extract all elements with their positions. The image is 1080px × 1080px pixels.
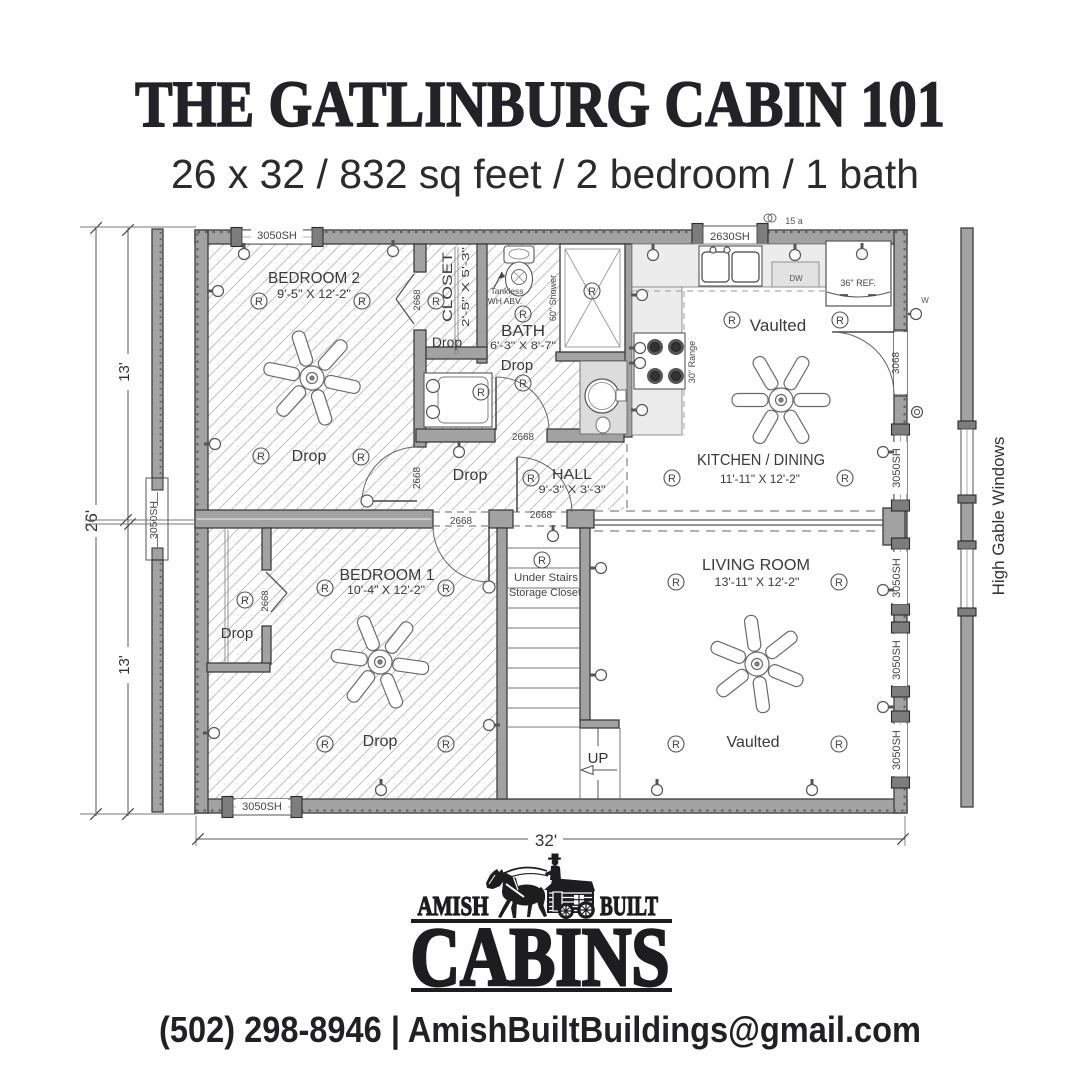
svg-text:BATH: BATH [501, 323, 545, 340]
svg-text:LIVING ROOM: LIVING ROOM [702, 557, 810, 574]
svg-text:26 x 32 / 832 sq feet / 2 bedr: 26 x 32 / 832 sq feet / 2 bedroom / 1 ba… [171, 151, 919, 197]
svg-text:Vaulted: Vaulted [726, 734, 779, 751]
svg-text:KITCHEN / DINING: KITCHEN / DINING [697, 452, 825, 469]
svg-text:Drop: Drop [453, 467, 488, 484]
svg-text:WH ABV.: WH ABV. [488, 296, 523, 306]
svg-text:26': 26' [82, 510, 101, 532]
svg-text:36" REF.: 36" REF. [840, 278, 875, 288]
svg-text:10'-4" X 12'-2": 10'-4" X 12'-2" [347, 585, 425, 597]
svg-text:UP: UP [588, 750, 609, 767]
svg-text:9'-3" X 3'-3": 9'-3" X 3'-3" [539, 484, 606, 496]
svg-text:Storage Closet: Storage Closet [509, 587, 581, 599]
svg-text:R: R [477, 387, 485, 399]
svg-text:13': 13' [116, 655, 133, 675]
svg-text:R: R [841, 473, 849, 485]
svg-text:Drop: Drop [363, 733, 398, 750]
svg-text:Drop: Drop [221, 625, 254, 642]
svg-text:R: R [668, 473, 676, 485]
svg-text:DW: DW [789, 274, 803, 283]
svg-text:R: R [519, 309, 527, 321]
svg-text:R: R [357, 452, 365, 464]
svg-text:R: R [538, 555, 546, 567]
svg-text:2668: 2668 [412, 289, 423, 310]
svg-text:R: R [672, 739, 680, 751]
svg-text:11'-11" X 12'-2": 11'-11" X 12'-2" [720, 474, 800, 486]
svg-text:Drop: Drop [292, 448, 327, 465]
svg-text:2'-5" X 5'-3": 2'-5" X 5'-3" [460, 247, 472, 327]
svg-text:(502) 298-8946 | AmishBuiltBui: (502) 298-8946 | AmishBuiltBuildings@gma… [159, 1009, 921, 1051]
svg-text:3068: 3068 [891, 351, 902, 374]
svg-text:15 a: 15 a [785, 216, 803, 226]
svg-text:R: R [836, 315, 844, 327]
svg-text:3050SH: 3050SH [891, 558, 903, 598]
svg-text:3050SH: 3050SH [257, 230, 297, 242]
svg-text:2668: 2668 [260, 590, 271, 611]
svg-text:6'-3" X 8'-7": 6'-3" X 8'-7" [490, 340, 556, 352]
svg-text:CLOSET: CLOSET [440, 252, 455, 322]
svg-text:High Gable Windows: High Gable Windows [989, 437, 1008, 596]
svg-text:Drop: Drop [501, 357, 534, 374]
svg-text:HALL: HALL [552, 466, 592, 483]
svg-text:R: R [241, 595, 249, 607]
svg-text:R: R [358, 296, 366, 308]
svg-text:R: R [519, 378, 527, 390]
svg-text:3050SH: 3050SH [891, 448, 903, 488]
svg-text:9'-5" X 12'-2": 9'-5" X 12'-2" [277, 289, 351, 301]
svg-text:3050SH: 3050SH [891, 640, 903, 680]
svg-text:R: R [321, 739, 329, 751]
svg-text:R: R [835, 739, 843, 751]
svg-text:R: R [728, 315, 736, 327]
svg-text:Vaulted: Vaulted [750, 316, 806, 335]
svg-text:3050SH: 3050SH [242, 801, 282, 813]
svg-text:THE GATLINBURG CABIN 101: THE GATLINBURG CABIN 101 [135, 68, 945, 141]
svg-text:R: R [257, 451, 265, 463]
svg-text:3050SH: 3050SH [891, 730, 903, 770]
svg-text:R: R [835, 577, 843, 589]
svg-text:Tankless: Tankless [490, 286, 523, 296]
svg-text:Under Stairs: Under Stairs [514, 572, 579, 584]
svg-text:13': 13' [116, 362, 133, 382]
svg-text:R: R [321, 583, 329, 595]
svg-text:R: R [442, 583, 450, 595]
svg-text:13'-11" X 12'-2": 13'-11" X 12'-2" [715, 577, 800, 589]
svg-text:W: W [921, 296, 929, 305]
svg-text:R: R [255, 296, 263, 308]
svg-text:BEDROOM 2: BEDROOM 2 [268, 270, 360, 287]
svg-text:BEDROOM 1: BEDROOM 1 [340, 567, 435, 584]
svg-text:2668: 2668 [450, 516, 473, 527]
svg-text:32': 32' [535, 831, 557, 850]
svg-text:R: R [432, 296, 440, 308]
svg-text:R: R [672, 577, 680, 589]
svg-text:2668: 2668 [412, 466, 423, 489]
svg-text:2668: 2668 [530, 510, 553, 521]
svg-text:2630SH: 2630SH [710, 231, 750, 243]
svg-text:Drop: Drop [432, 334, 463, 350]
svg-text:R: R [588, 286, 596, 298]
svg-text:2668: 2668 [512, 432, 535, 443]
svg-text:R: R [527, 473, 535, 485]
svg-text:60" Shower: 60" Shower [548, 275, 558, 321]
svg-text:R: R [442, 739, 450, 751]
svg-text:30" Range: 30" Range [687, 341, 697, 383]
